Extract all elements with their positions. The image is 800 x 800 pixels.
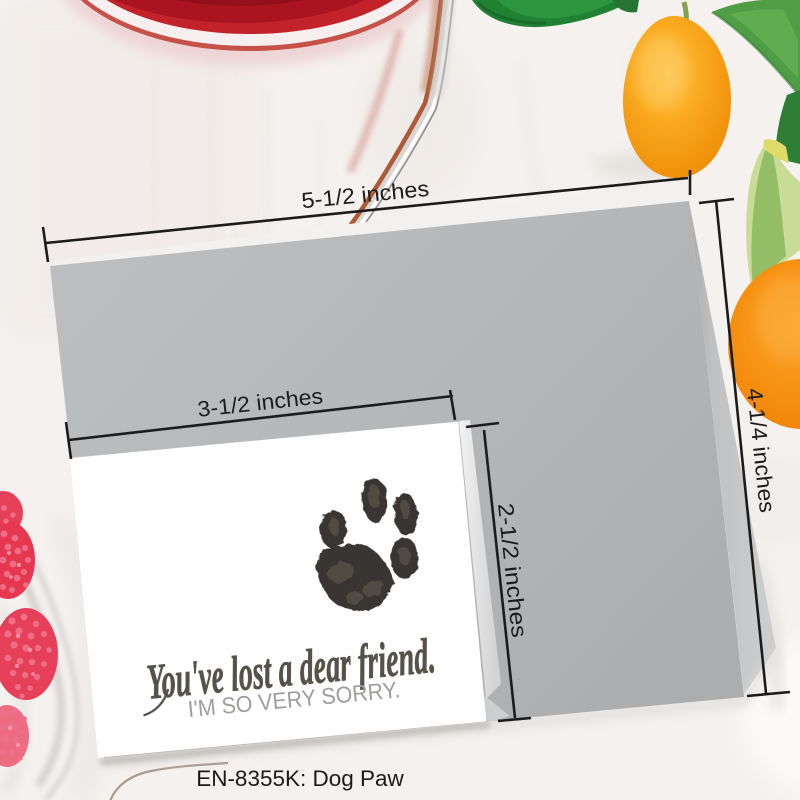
svg-text:EN-8355K: Dog Paw: EN-8355K: Dog Paw: [196, 766, 404, 791]
